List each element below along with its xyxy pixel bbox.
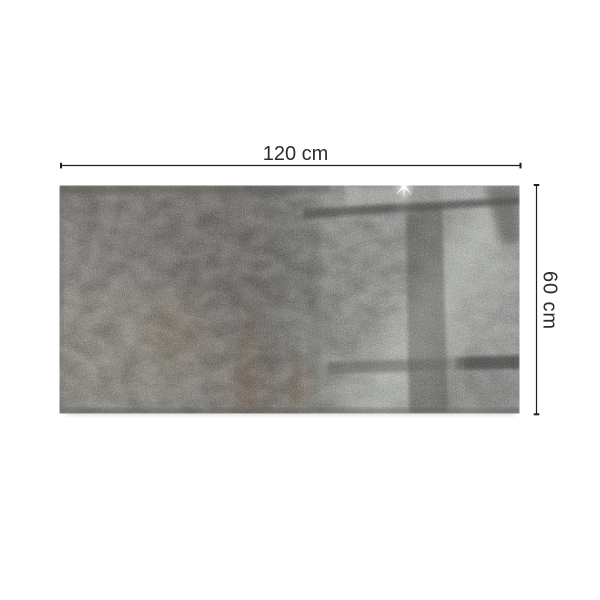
svg-text:120 cm: 120 cm xyxy=(263,143,329,165)
svg-text:60 cm: 60 cm xyxy=(539,271,561,330)
